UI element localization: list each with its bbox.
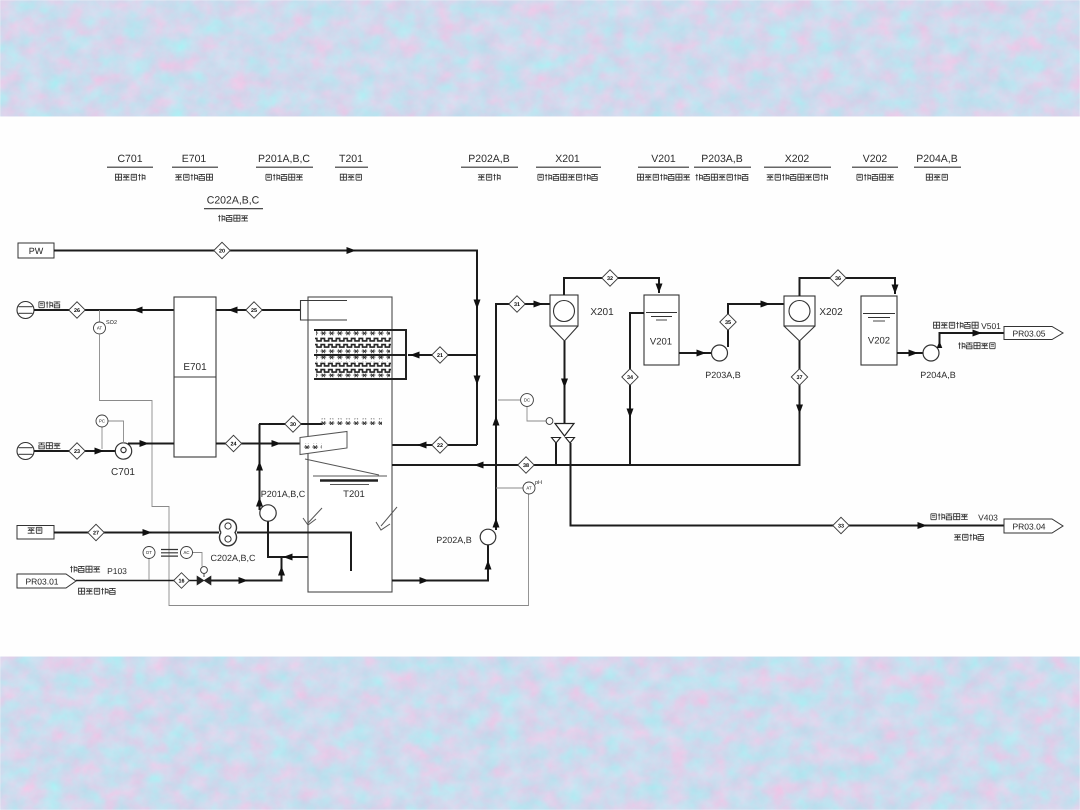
svg-text:P203A,B: P203A,B: [705, 370, 741, 380]
svg-text:AC: AC: [184, 550, 190, 555]
svg-text:C202A,B,C: C202A,B,C: [207, 195, 260, 207]
svg-text:36: 36: [835, 276, 841, 282]
svg-text:X202: X202: [819, 307, 843, 318]
svg-text:27: 27: [93, 530, 99, 536]
svg-text:PR03.05: PR03.05: [1012, 329, 1045, 339]
svg-text:X201: X201: [555, 153, 580, 165]
svg-text:37: 37: [797, 375, 803, 381]
svg-text:PC: PC: [99, 419, 105, 424]
svg-text:C701: C701: [111, 467, 135, 478]
svg-text:24: 24: [231, 441, 237, 447]
svg-text:38: 38: [523, 463, 529, 469]
svg-text:P204A,B: P204A,B: [920, 370, 956, 380]
svg-text:PR03.04: PR03.04: [1012, 522, 1045, 532]
svg-text:P202A,B: P202A,B: [468, 153, 509, 165]
svg-text:AT: AT: [526, 486, 532, 491]
svg-text:35: 35: [725, 320, 731, 326]
svg-text:E701: E701: [183, 362, 207, 373]
svg-text:31: 31: [514, 302, 520, 308]
svg-text:V202: V202: [868, 336, 890, 347]
svg-text:V501: V501: [981, 321, 1001, 331]
svg-text:33: 33: [838, 523, 844, 529]
svg-text:32: 32: [607, 276, 613, 282]
svg-text:25: 25: [251, 308, 257, 314]
svg-text:V202: V202: [863, 153, 888, 165]
svg-text:SO2: SO2: [106, 320, 117, 326]
svg-text:26: 26: [74, 308, 80, 314]
svg-text:20: 20: [219, 248, 225, 254]
svg-text:P204A,B: P204A,B: [916, 153, 957, 165]
svg-text:DT: DT: [146, 550, 152, 555]
svg-text:V201: V201: [650, 337, 672, 348]
svg-text:P103: P103: [107, 566, 127, 576]
svg-text:T201: T201: [343, 489, 365, 500]
svg-text:22: 22: [437, 443, 443, 449]
svg-text:E701: E701: [182, 153, 207, 165]
svg-text:PR03.01: PR03.01: [25, 577, 58, 587]
svg-text:30: 30: [290, 422, 296, 428]
svg-text:AT: AT: [97, 326, 103, 331]
svg-text:pH: pH: [535, 480, 542, 486]
svg-text:34: 34: [627, 375, 633, 381]
svg-text:T201: T201: [339, 153, 363, 165]
svg-text:23: 23: [74, 449, 80, 455]
svg-text:X202: X202: [785, 153, 810, 165]
svg-text:C202A,B,C: C202A,B,C: [210, 553, 256, 563]
svg-text:V403: V403: [978, 513, 998, 523]
svg-text:X201: X201: [590, 307, 614, 318]
svg-text:P201A,B,C: P201A,B,C: [261, 489, 306, 499]
svg-text:PW: PW: [29, 246, 44, 256]
svg-text:C701: C701: [117, 153, 142, 165]
svg-text:21: 21: [437, 353, 443, 359]
svg-text:P202A,B: P202A,B: [436, 535, 472, 545]
svg-text:16: 16: [179, 578, 185, 584]
svg-text:V201: V201: [651, 153, 676, 165]
svg-text:P203A,B: P203A,B: [701, 153, 742, 165]
svg-text:P201A,B,C: P201A,B,C: [258, 153, 310, 165]
svg-text:DC: DC: [524, 398, 530, 403]
